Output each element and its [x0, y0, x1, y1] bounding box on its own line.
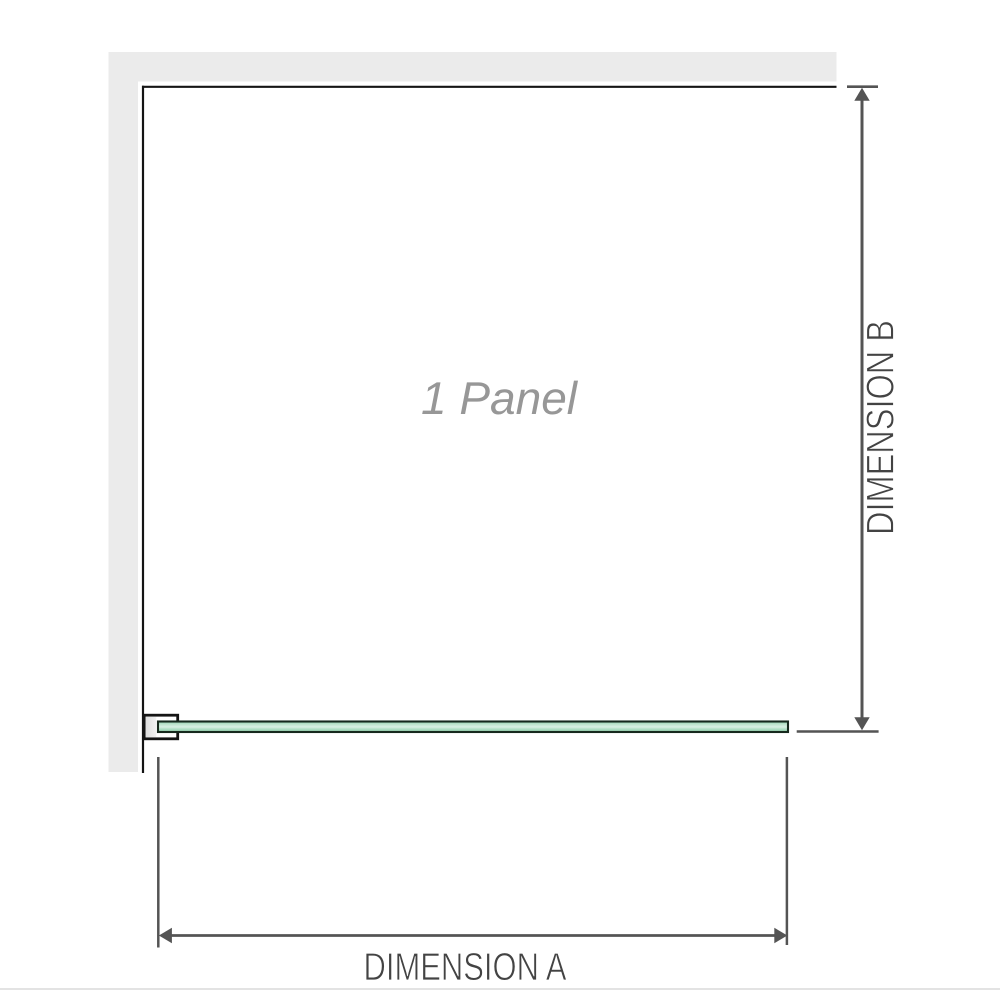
svg-text:DIMENSION A: DIMENSION A: [364, 946, 567, 989]
svg-text:1 Panel: 1 Panel: [421, 372, 579, 424]
svg-text:DIMENSION B: DIMENSION B: [860, 320, 903, 535]
